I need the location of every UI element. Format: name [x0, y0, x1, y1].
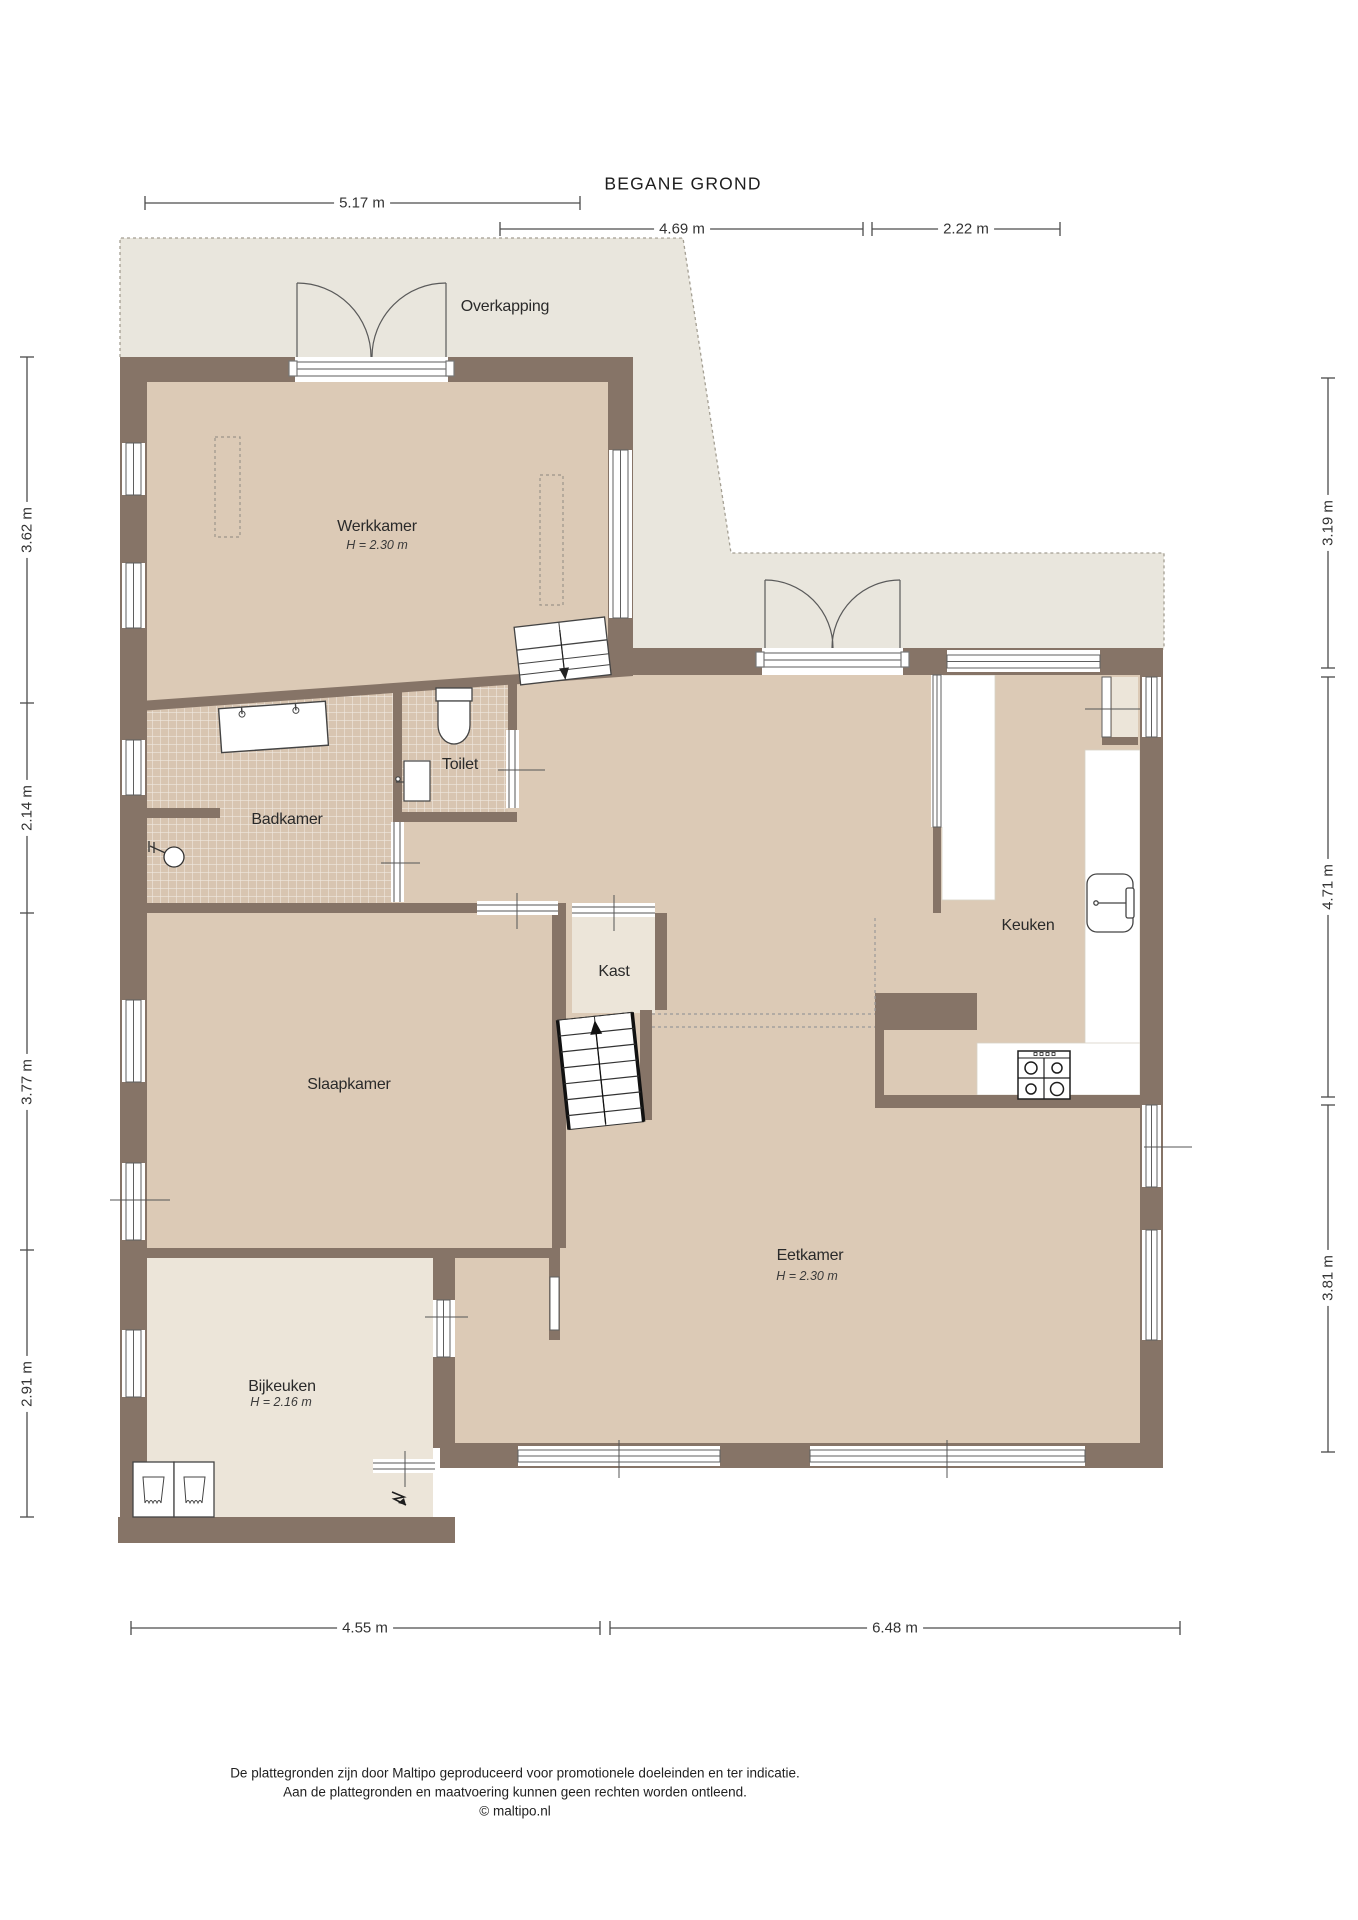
kitchen-sink-icon [1087, 874, 1134, 932]
room-label-werkkamer: Werkkamer [337, 518, 417, 536]
footer-copyright: © maltipo.nl [479, 1804, 550, 1819]
dim-bottom-2: 6.48 m [867, 1620, 923, 1637]
stove-icon [1018, 1051, 1070, 1099]
room-label-toilet: Toilet [442, 756, 478, 774]
footer-disclaimer-line1: De plattegronden zijn door Maltipo gepro… [230, 1766, 800, 1781]
room-height-bijkeuken: H = 2.16 m [250, 1395, 312, 1409]
dryer-icon [174, 1462, 214, 1517]
room-label-badkamer: Badkamer [251, 811, 322, 829]
dim-top-1: 5.17 m [334, 195, 390, 212]
dim-left-1: 3.62 m [19, 502, 36, 558]
stairs-down [514, 617, 611, 685]
room-label-overkapping: Overkapping [461, 298, 550, 316]
floorplan-page: BEGANE GROND Overkapping Werkkamer H = 2… [0, 0, 1358, 1920]
footer-disclaimer-line2: Aan de plattegronden en maatvoering kunn… [283, 1785, 747, 1800]
dim-top-3: 2.22 m [938, 221, 994, 238]
room-label-slaapkamer: Slaapkamer [307, 1076, 390, 1094]
stairs-up [558, 1012, 644, 1129]
dim-right-3: 3.81 m [1320, 1250, 1337, 1306]
dim-left-4: 2.91 m [19, 1356, 36, 1412]
vanity-icon [219, 701, 329, 752]
dim-bottom-1: 4.55 m [337, 1620, 393, 1637]
room-label-eetkamer: Eetkamer [777, 1247, 844, 1265]
washer-icon [133, 1462, 174, 1517]
dim-left-2: 2.14 m [19, 780, 36, 836]
room-label-keuken: Keuken [1001, 917, 1054, 935]
dim-right-1: 3.19 m [1320, 495, 1337, 551]
toilet-icon [436, 688, 472, 744]
page-title: BEGANE GROND [604, 174, 761, 195]
room-height-werkkamer: H = 2.30 m [346, 538, 408, 552]
dim-right-2: 4.71 m [1320, 859, 1337, 915]
room-label-kast: Kast [598, 963, 629, 981]
floorplan-drawing [0, 0, 1358, 1920]
dim-left-3: 3.77 m [19, 1054, 36, 1110]
room-height-eetkamer: H = 2.30 m [776, 1269, 838, 1283]
room-label-bijkeuken: Bijkeuken [248, 1378, 316, 1396]
dim-top-2: 4.69 m [654, 221, 710, 238]
